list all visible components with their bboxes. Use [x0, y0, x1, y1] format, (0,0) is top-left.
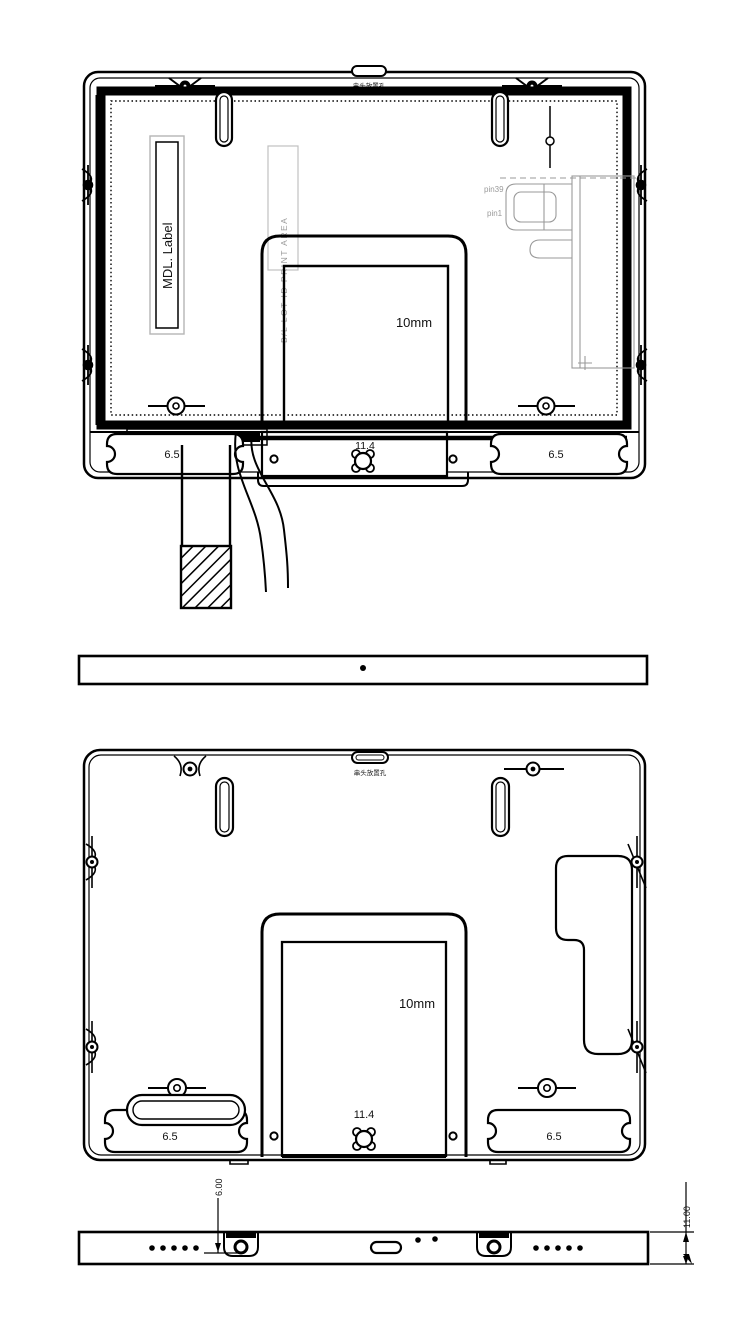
mount-boss-right — [477, 1233, 511, 1256]
right-pocket-outline — [556, 856, 632, 1054]
alignment-slot-left — [216, 92, 232, 146]
cover-edge-screws — [86, 836, 646, 1073]
alignment-slot-right — [492, 92, 508, 146]
bottom-screw-right-icon — [518, 398, 575, 415]
top-tab — [352, 66, 386, 76]
engineering-drawing-sheet: 串头放置孔 — [0, 0, 750, 1336]
cover-dim-6-5-left: 6.5 — [162, 1131, 177, 1143]
mdl-label-text: MDL. Label — [160, 222, 175, 289]
bottom-bracket-strip: 6.5 6.5 11.4 — [90, 429, 639, 476]
cover-slot-right — [492, 778, 509, 836]
led-dot-2 — [432, 1236, 438, 1242]
side-profile-dot — [360, 665, 366, 671]
rear-view-with-fpc: 串头放置孔 — [82, 66, 647, 608]
bottom-screw-left-icon — [148, 398, 205, 415]
cover-clover-hole-icon — [353, 1128, 375, 1150]
led-dot-1 — [415, 1237, 421, 1243]
screw-top-right-icon — [504, 763, 564, 776]
rear-view-cover: 串头放置孔 — [84, 750, 646, 1164]
dim-6-00: 6.00 — [204, 1178, 240, 1253]
center-bracket: 10mm — [262, 236, 466, 426]
top-note-label-2: 串头放置孔 — [354, 768, 387, 777]
mdl-label-area: MDL. Label — [150, 136, 184, 334]
dim-6-00-label: 6.00 — [214, 1178, 224, 1196]
clover-hole-icon — [352, 450, 374, 472]
bottom-edge-view: 6.00 11.00 — [79, 1178, 694, 1264]
drawing-svg: 串头放置孔 — [0, 0, 750, 1336]
cover-stadium-slot — [127, 1095, 245, 1125]
top-slot — [352, 752, 388, 763]
fpc-connector-detail: pin39 pin1 — [484, 176, 638, 370]
small-screw-marker — [546, 106, 554, 168]
fpc-stiffener-hatched — [181, 546, 231, 608]
cover-dim-6-5-right: 6.5 — [546, 1131, 561, 1143]
depth-label: 10mm — [396, 315, 432, 330]
dim-6-5-right: 6.5 — [548, 449, 563, 461]
cover-dim-11-4: 11.4 — [354, 1109, 375, 1121]
screw-top-left-icon — [174, 756, 206, 776]
speaker-holes-right — [533, 1245, 583, 1251]
dim-6-5-left: 6.5 — [164, 449, 179, 461]
pin39-label: pin39 — [484, 185, 504, 194]
dim-11-00: 11.00 — [650, 1182, 694, 1264]
cover-depth-label: 10mm — [399, 996, 435, 1011]
pin1-label: pin1 — [487, 209, 503, 218]
cover-slot-left — [216, 778, 233, 836]
side-profile-view — [79, 656, 647, 684]
dim-11-00-label: 11.00 — [682, 1206, 692, 1228]
cover-bottom-screw-right — [518, 1079, 576, 1097]
speaker-holes-left — [149, 1245, 199, 1251]
center-port — [371, 1242, 401, 1253]
